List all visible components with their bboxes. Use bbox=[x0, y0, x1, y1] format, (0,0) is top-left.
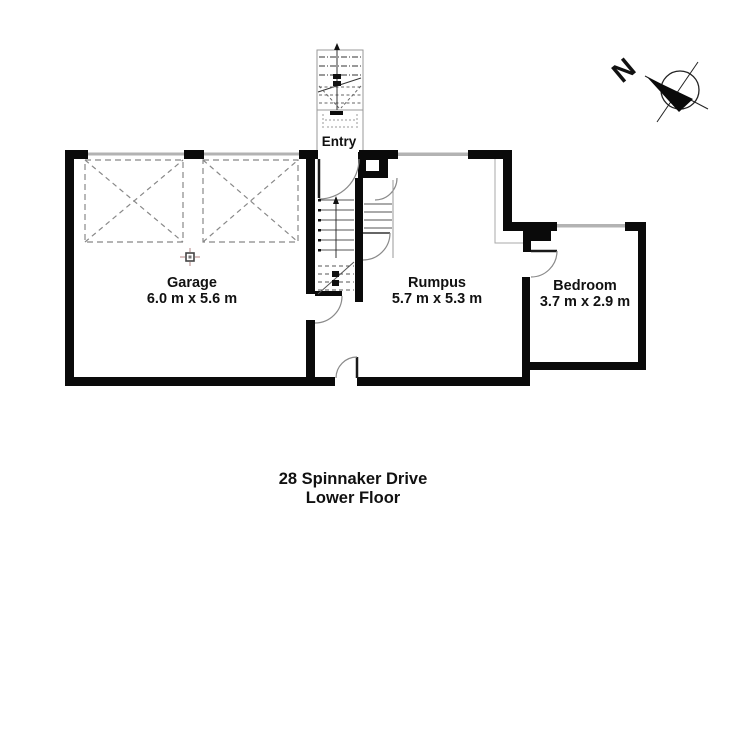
walls bbox=[65, 150, 646, 386]
floor-plan-page: N Entry Garage 6.0 m x 5.6 m Rumpus 5.7 … bbox=[0, 0, 750, 750]
title-address: 28 Spinnaker Drive bbox=[279, 470, 428, 488]
garage-parking-markings bbox=[85, 160, 298, 242]
plan-title: 28 Spinnaker Drive Lower Floor bbox=[279, 470, 428, 507]
doors bbox=[315, 159, 557, 378]
rumpus-dimensions: 5.7 m x 5.3 m bbox=[392, 291, 482, 307]
rumpus-door-arc bbox=[336, 357, 357, 378]
north-label: N bbox=[606, 52, 641, 89]
ceiling-light-icon bbox=[180, 248, 200, 266]
entry-label: Entry bbox=[322, 134, 357, 149]
rumpus-window bbox=[398, 153, 468, 157]
rumpus-label: Rumpus bbox=[408, 275, 466, 291]
bedroom-window bbox=[557, 224, 625, 228]
garage-rumpus-door-arc bbox=[315, 296, 342, 323]
stair-winder-arc bbox=[375, 178, 397, 200]
north-compass-icon: N bbox=[606, 52, 708, 122]
garage-dimensions: 6.0 m x 5.6 m bbox=[147, 291, 237, 307]
entry-pier-core bbox=[366, 160, 379, 171]
garage-door-left bbox=[88, 153, 184, 156]
room-labels: Entry Garage 6.0 m x 5.6 m Rumpus 5.7 m … bbox=[147, 134, 630, 310]
bedroom-dimensions: 3.7 m x 2.9 m bbox=[540, 294, 630, 310]
bedroom-label: Bedroom bbox=[553, 278, 617, 294]
entry-stair-arrow bbox=[334, 43, 340, 50]
title-floor: Lower Floor bbox=[306, 489, 401, 507]
stair-door-arc bbox=[363, 233, 390, 260]
garage-label: Garage bbox=[167, 275, 217, 291]
entry-door-arc bbox=[319, 159, 359, 199]
garage-door-right bbox=[204, 153, 299, 156]
bedroom-door-arc bbox=[531, 251, 557, 277]
floor-plan-drawing: N Entry Garage 6.0 m x 5.6 m Rumpus 5.7 … bbox=[0, 0, 750, 750]
